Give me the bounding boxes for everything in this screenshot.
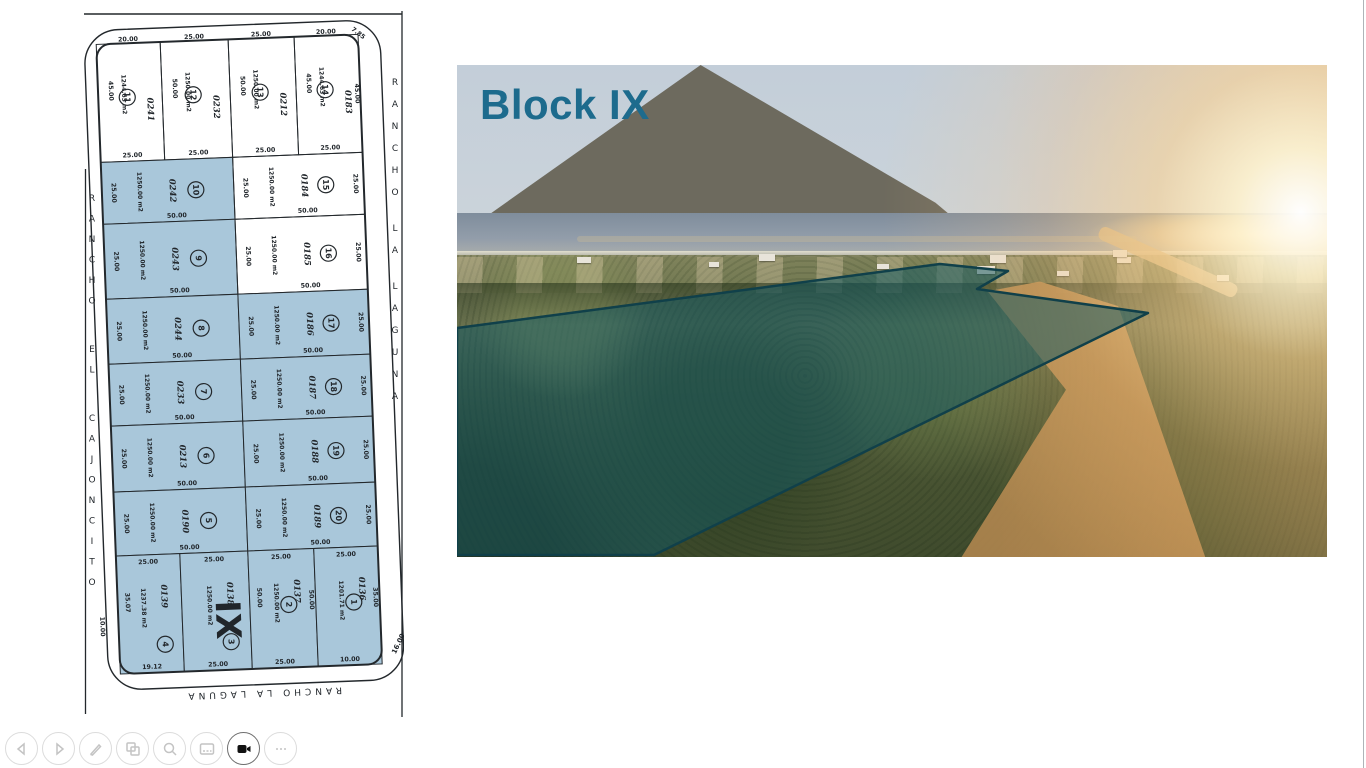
slides-grid-icon: [124, 740, 142, 758]
svg-text:19.12: 19.12: [142, 663, 162, 671]
svg-text:25.00: 25.00: [122, 514, 130, 535]
svg-text:50.00: 50.00: [307, 590, 315, 611]
svg-text:3: 3: [227, 639, 236, 645]
more-options-button[interactable]: [264, 732, 297, 765]
svg-text:T: T: [88, 558, 95, 568]
svg-text:45.00: 45.00: [353, 83, 361, 104]
svg-text:19: 19: [331, 445, 340, 457]
svg-text:25.00: 25.00: [354, 242, 362, 263]
svg-text:50.00: 50.00: [172, 352, 193, 360]
svg-text:0242: 0242: [166, 179, 177, 203]
svg-text:A: A: [392, 246, 399, 256]
svg-text:J: J: [90, 455, 94, 465]
svg-text:50.00: 50.00: [177, 480, 198, 488]
svg-text:50.00: 50.00: [308, 475, 329, 483]
svg-text:25.00: 25.00: [271, 553, 292, 561]
parcel-highlight-overlay: [457, 65, 1327, 557]
svg-text:45.00: 45.00: [304, 73, 312, 94]
svg-text:25.00: 25.00: [275, 658, 296, 666]
svg-text:0213: 0213: [177, 444, 188, 468]
svg-text:0184: 0184: [298, 174, 309, 198]
svg-text:0137: 0137: [291, 579, 302, 603]
svg-text:25.00: 25.00: [117, 385, 125, 406]
svg-text:25.00: 25.00: [336, 551, 357, 559]
svg-text:IX: IX: [207, 600, 248, 640]
svg-text:C: C: [89, 517, 95, 527]
svg-text:0189: 0189: [311, 504, 322, 528]
svg-text:50.00: 50.00: [298, 207, 319, 215]
plat-map-image: RANCHOELCAJONCITORANCHOLALAGUNA20.0025.0…: [84, 9, 404, 721]
svg-text:25.00: 25.00: [255, 147, 276, 155]
svg-text:25.00: 25.00: [112, 251, 120, 272]
magnifier-icon: [161, 740, 179, 758]
svg-text:25.00: 25.00: [204, 556, 225, 564]
svg-text:O: O: [88, 476, 95, 486]
svg-text:0136: 0136: [356, 577, 367, 601]
svg-text:50.00: 50.00: [255, 588, 263, 609]
svg-text:20: 20: [334, 510, 343, 522]
svg-text:8: 8: [196, 325, 205, 331]
svg-text:C: C: [89, 414, 95, 424]
svg-text:A: A: [392, 100, 399, 110]
svg-text:H: H: [89, 276, 96, 286]
svg-text:10: 10: [191, 184, 200, 196]
svg-text:G: G: [392, 326, 399, 336]
svg-text:13: 13: [255, 86, 264, 97]
slide-title: Block IX: [480, 81, 650, 129]
svg-text:L: L: [392, 282, 397, 292]
svg-text:A: A: [89, 215, 96, 225]
svg-text:9: 9: [194, 255, 203, 261]
svg-text:20.00: 20.00: [316, 28, 337, 36]
svg-text:25.00: 25.00: [254, 508, 262, 529]
camera-icon: [235, 740, 253, 758]
svg-text:0186: 0186: [304, 312, 315, 336]
svg-text:16: 16: [324, 247, 333, 259]
presenter-toolbar: [5, 732, 297, 766]
ellipsis-icon: [272, 740, 290, 758]
svg-text:25.00: 25.00: [357, 312, 365, 333]
camera-button[interactable]: [227, 732, 260, 765]
svg-text:C: C: [392, 144, 398, 154]
presentation-slide: RANCHOELCAJONCITORANCHOLALAGUNA20.0025.0…: [0, 0, 1366, 768]
svg-text:0188: 0188: [309, 439, 320, 463]
svg-text:25.00: 25.00: [247, 316, 255, 337]
svg-text:0187: 0187: [306, 375, 317, 399]
svg-text:A: A: [392, 304, 399, 314]
svg-text:25.00: 25.00: [115, 321, 123, 342]
svg-text:10.00: 10.00: [340, 656, 361, 664]
svg-text:25.00: 25.00: [244, 246, 252, 267]
svg-text:25.00: 25.00: [184, 33, 205, 41]
svg-text:25.00: 25.00: [362, 439, 370, 460]
svg-text:25.00: 25.00: [251, 31, 272, 39]
svg-text:0244: 0244: [172, 317, 183, 341]
svg-text:0232: 0232: [210, 95, 221, 119]
pen-button[interactable]: [79, 732, 112, 765]
svg-text:25.00: 25.00: [252, 444, 260, 465]
svg-text:25.00: 25.00: [320, 144, 341, 152]
svg-text:25.00: 25.00: [359, 375, 367, 396]
svg-text:17: 17: [326, 317, 335, 328]
slide-edge-line: [1363, 0, 1364, 768]
zoom-slide-button[interactable]: [153, 732, 186, 765]
svg-text:18: 18: [329, 381, 338, 393]
arrow-left-icon: [13, 740, 31, 758]
svg-text:35.00: 35.00: [371, 587, 379, 608]
arrow-right-icon: [50, 740, 68, 758]
svg-text:1250.00 m2: 1250.00 m2: [270, 235, 279, 275]
svg-text:50.00: 50.00: [301, 282, 322, 290]
svg-text:50.00: 50.00: [303, 347, 324, 355]
svg-text:11: 11: [122, 92, 131, 104]
svg-text:A: A: [89, 435, 96, 445]
svg-text:L: L: [89, 366, 94, 376]
svg-text:25.00: 25.00: [351, 174, 359, 195]
svg-text:25.00: 25.00: [208, 661, 229, 669]
svg-text:25.00: 25.00: [241, 178, 249, 199]
svg-text:0241: 0241: [144, 97, 155, 121]
svg-text:4: 4: [161, 641, 170, 647]
svg-text:A: A: [392, 392, 399, 402]
svg-text:1: 1: [349, 599, 358, 605]
svg-text:35.07: 35.07: [123, 593, 131, 613]
captions-button[interactable]: [190, 732, 223, 765]
svg-text:L: L: [392, 224, 397, 234]
svg-text:0190: 0190: [179, 509, 190, 533]
svg-text:0233: 0233: [174, 380, 185, 404]
svg-text:H: H: [392, 166, 399, 176]
svg-text:R: R: [392, 78, 398, 88]
svg-text:0183: 0183: [342, 90, 353, 114]
captions-icon: [198, 740, 216, 758]
svg-text:50.00: 50.00: [310, 539, 331, 547]
plat-map-svg: RANCHOELCAJONCITORANCHOLALAGUNA20.0025.0…: [84, 9, 404, 721]
svg-text:25.00: 25.00: [122, 152, 143, 160]
svg-text:25.00: 25.00: [120, 449, 128, 470]
svg-text:25.00: 25.00: [249, 380, 257, 401]
svg-text:45.00: 45.00: [107, 81, 115, 102]
svg-text:1250.00 m2: 1250.00 m2: [267, 167, 276, 207]
svg-text:25.00: 25.00: [110, 183, 118, 204]
see-all-slides-button[interactable]: [116, 732, 149, 765]
svg-text:O: O: [391, 188, 398, 198]
next-slide-button[interactable]: [42, 732, 75, 765]
svg-text:0212: 0212: [277, 92, 288, 116]
svg-text:50.00: 50.00: [175, 414, 196, 422]
svg-text:14: 14: [320, 84, 329, 96]
aerial-photo: Block IX: [457, 65, 1327, 557]
pen-icon: [87, 740, 105, 758]
svg-text:2: 2: [284, 602, 293, 608]
svg-text:20.00: 20.00: [118, 36, 139, 44]
svg-text:50.00: 50.00: [239, 76, 247, 97]
svg-text:25.00: 25.00: [138, 558, 159, 566]
svg-text:50.00: 50.00: [167, 212, 188, 220]
svg-text:0243: 0243: [169, 247, 180, 271]
svg-text:15: 15: [321, 179, 330, 191]
svg-text:0185: 0185: [301, 242, 312, 266]
svg-text:E: E: [89, 345, 95, 355]
svg-text:50.00: 50.00: [180, 544, 201, 552]
svg-text:50.00: 50.00: [171, 78, 179, 99]
svg-text:10.00: 10.00: [98, 617, 106, 638]
svg-text:25.00: 25.00: [364, 504, 372, 525]
svg-text:50.00: 50.00: [170, 287, 191, 295]
svg-text:25.00: 25.00: [188, 149, 209, 157]
svg-text:12: 12: [188, 89, 197, 100]
previous-slide-button[interactable]: [5, 732, 38, 765]
svg-text:N: N: [89, 496, 96, 506]
svg-text:N: N: [392, 122, 399, 132]
svg-text:I: I: [91, 537, 94, 547]
svg-text:6: 6: [201, 453, 210, 459]
svg-text:0139: 0139: [158, 584, 169, 608]
svg-text:O: O: [88, 578, 95, 588]
svg-text:50.00: 50.00: [305, 409, 326, 417]
svg-text:5: 5: [204, 518, 213, 524]
svg-text:7: 7: [199, 389, 208, 395]
